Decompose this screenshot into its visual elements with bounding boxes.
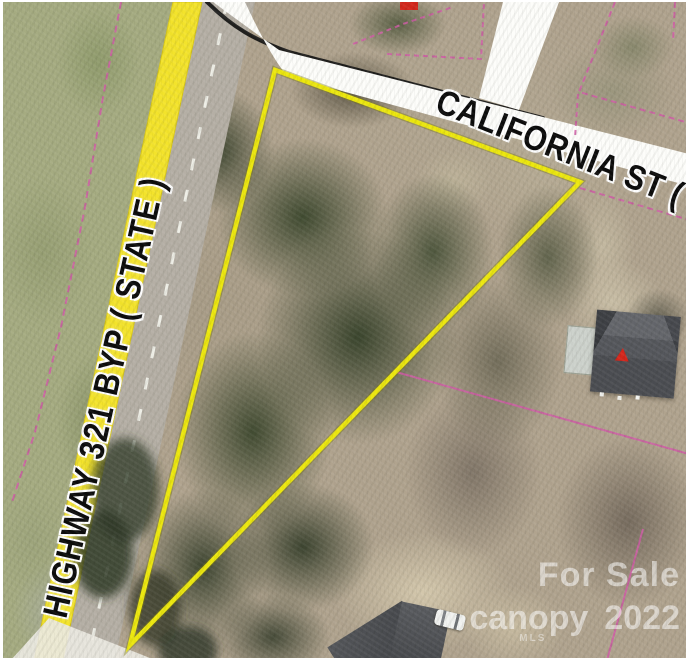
- house: [555, 303, 686, 414]
- house-roof: [590, 310, 681, 399]
- parcel-line: [353, 7, 453, 44]
- watermark-year: 2022: [604, 599, 680, 638]
- canopy-logo: canopy MLS: [469, 599, 588, 638]
- porch-post: [635, 395, 639, 399]
- parcel-line: [387, 2, 484, 59]
- canopy-mls-watermark: canopy MLS 2022: [469, 599, 680, 638]
- for-sale-watermark: For Sale: [469, 556, 680, 595]
- watermark: For Sale canopy MLS 2022: [469, 556, 680, 638]
- parcel-line: [673, 2, 675, 42]
- map-image: CALIFORNIA ST ( HIGHWAY 321 BYP ( STATE …: [0, 0, 686, 658]
- side-street-road: [479, 2, 559, 110]
- canopy-logo-text: canopy: [469, 599, 588, 637]
- porch-post: [600, 392, 604, 396]
- mls-logo-text: MLS: [519, 633, 546, 644]
- address-marker: [400, 2, 418, 10]
- parcel-line: [579, 2, 686, 123]
- porch-post: [617, 396, 621, 400]
- location-marker-icon: [615, 347, 630, 361]
